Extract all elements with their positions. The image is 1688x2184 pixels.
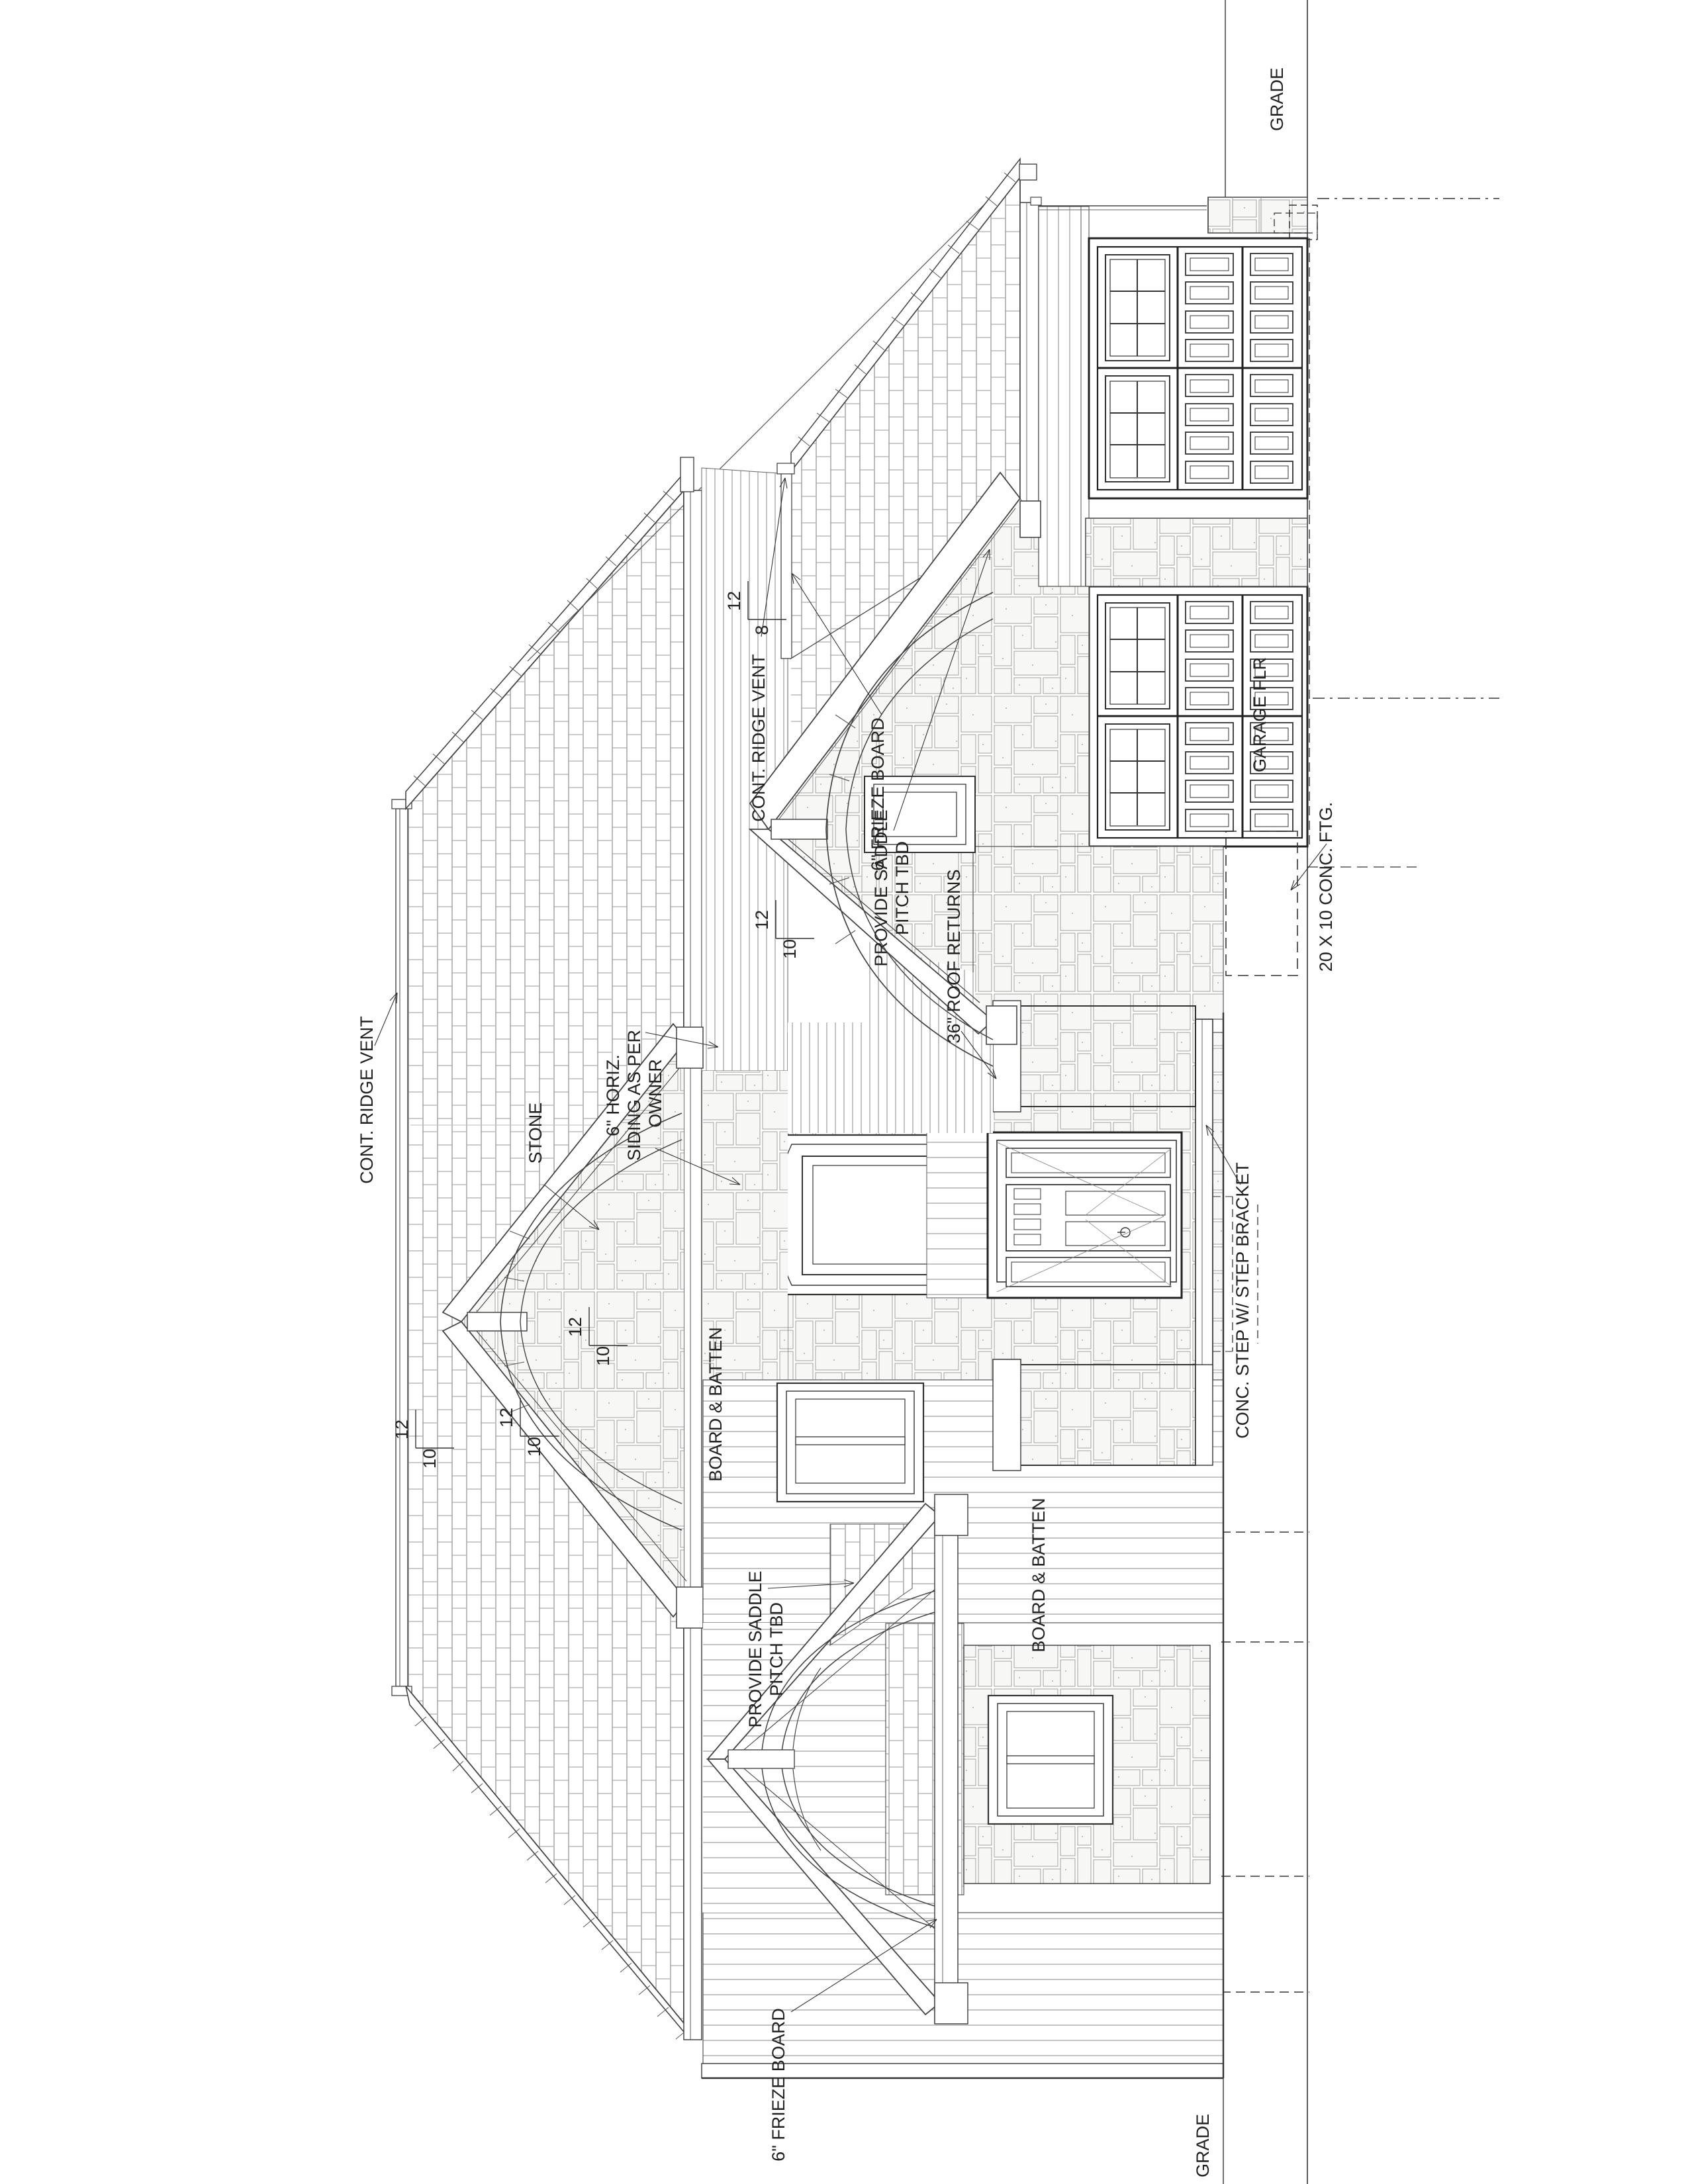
svg-text:CONT. RIDGE VENT: CONT. RIDGE VENT (357, 1016, 377, 1184)
svg-text:PITCH TBD: PITCH TBD (892, 841, 912, 935)
svg-text:12: 12 (392, 1420, 412, 1439)
svg-text:12: 12 (752, 910, 772, 930)
svg-text:OWNER: OWNER (645, 1059, 665, 1128)
svg-text:12: 12 (565, 1317, 585, 1337)
svg-text:20 X 10 CONC. FTG.: 20 X 10 CONC. FTG. (1316, 802, 1336, 972)
svg-text:8: 8 (752, 625, 772, 635)
svg-text:12: 12 (496, 1408, 516, 1428)
svg-text:36" ROOF RETURNS: 36" ROOF RETURNS (944, 869, 964, 1043)
svg-text:10: 10 (420, 1449, 440, 1469)
svg-text:10: 10 (524, 1437, 544, 1457)
svg-text:BOARD & BATTEN: BOARD & BATTEN (706, 1327, 726, 1482)
svg-text:SIDING AS PER: SIDING AS PER (624, 1030, 644, 1161)
svg-text:PROVIDE SADDLE: PROVIDE SADDLE (871, 809, 891, 966)
svg-text:PITCH TBD: PITCH TBD (767, 1602, 786, 1696)
svg-text:PROVIDE SADDLE: PROVIDE SADDLE (745, 1570, 765, 1727)
svg-text:6" FRIEZE BOARD: 6" FRIEZE BOARD (769, 2008, 788, 2161)
svg-text:6" HORIZ.: 6" HORIZ. (603, 1054, 623, 1136)
svg-text:GRADE: GRADE (1193, 2114, 1213, 2177)
svg-text:CONC. STEP W/ STEP BRACKET: CONC. STEP W/ STEP BRACKET (1233, 1162, 1252, 1439)
svg-text:BOARD & BATTEN: BOARD & BATTEN (1029, 1498, 1049, 1653)
svg-text:GRADE: GRADE (1267, 68, 1287, 131)
svg-text:12: 12 (724, 591, 744, 611)
svg-text:STONE: STONE (526, 1103, 545, 1164)
svg-text:CONT. RIDGE VENT: CONT. RIDGE VENT (749, 654, 769, 822)
svg-text:10: 10 (593, 1346, 613, 1366)
svg-text:GARAGE FLR: GARAGE FLR (1250, 657, 1270, 772)
svg-text:10: 10 (780, 939, 800, 959)
